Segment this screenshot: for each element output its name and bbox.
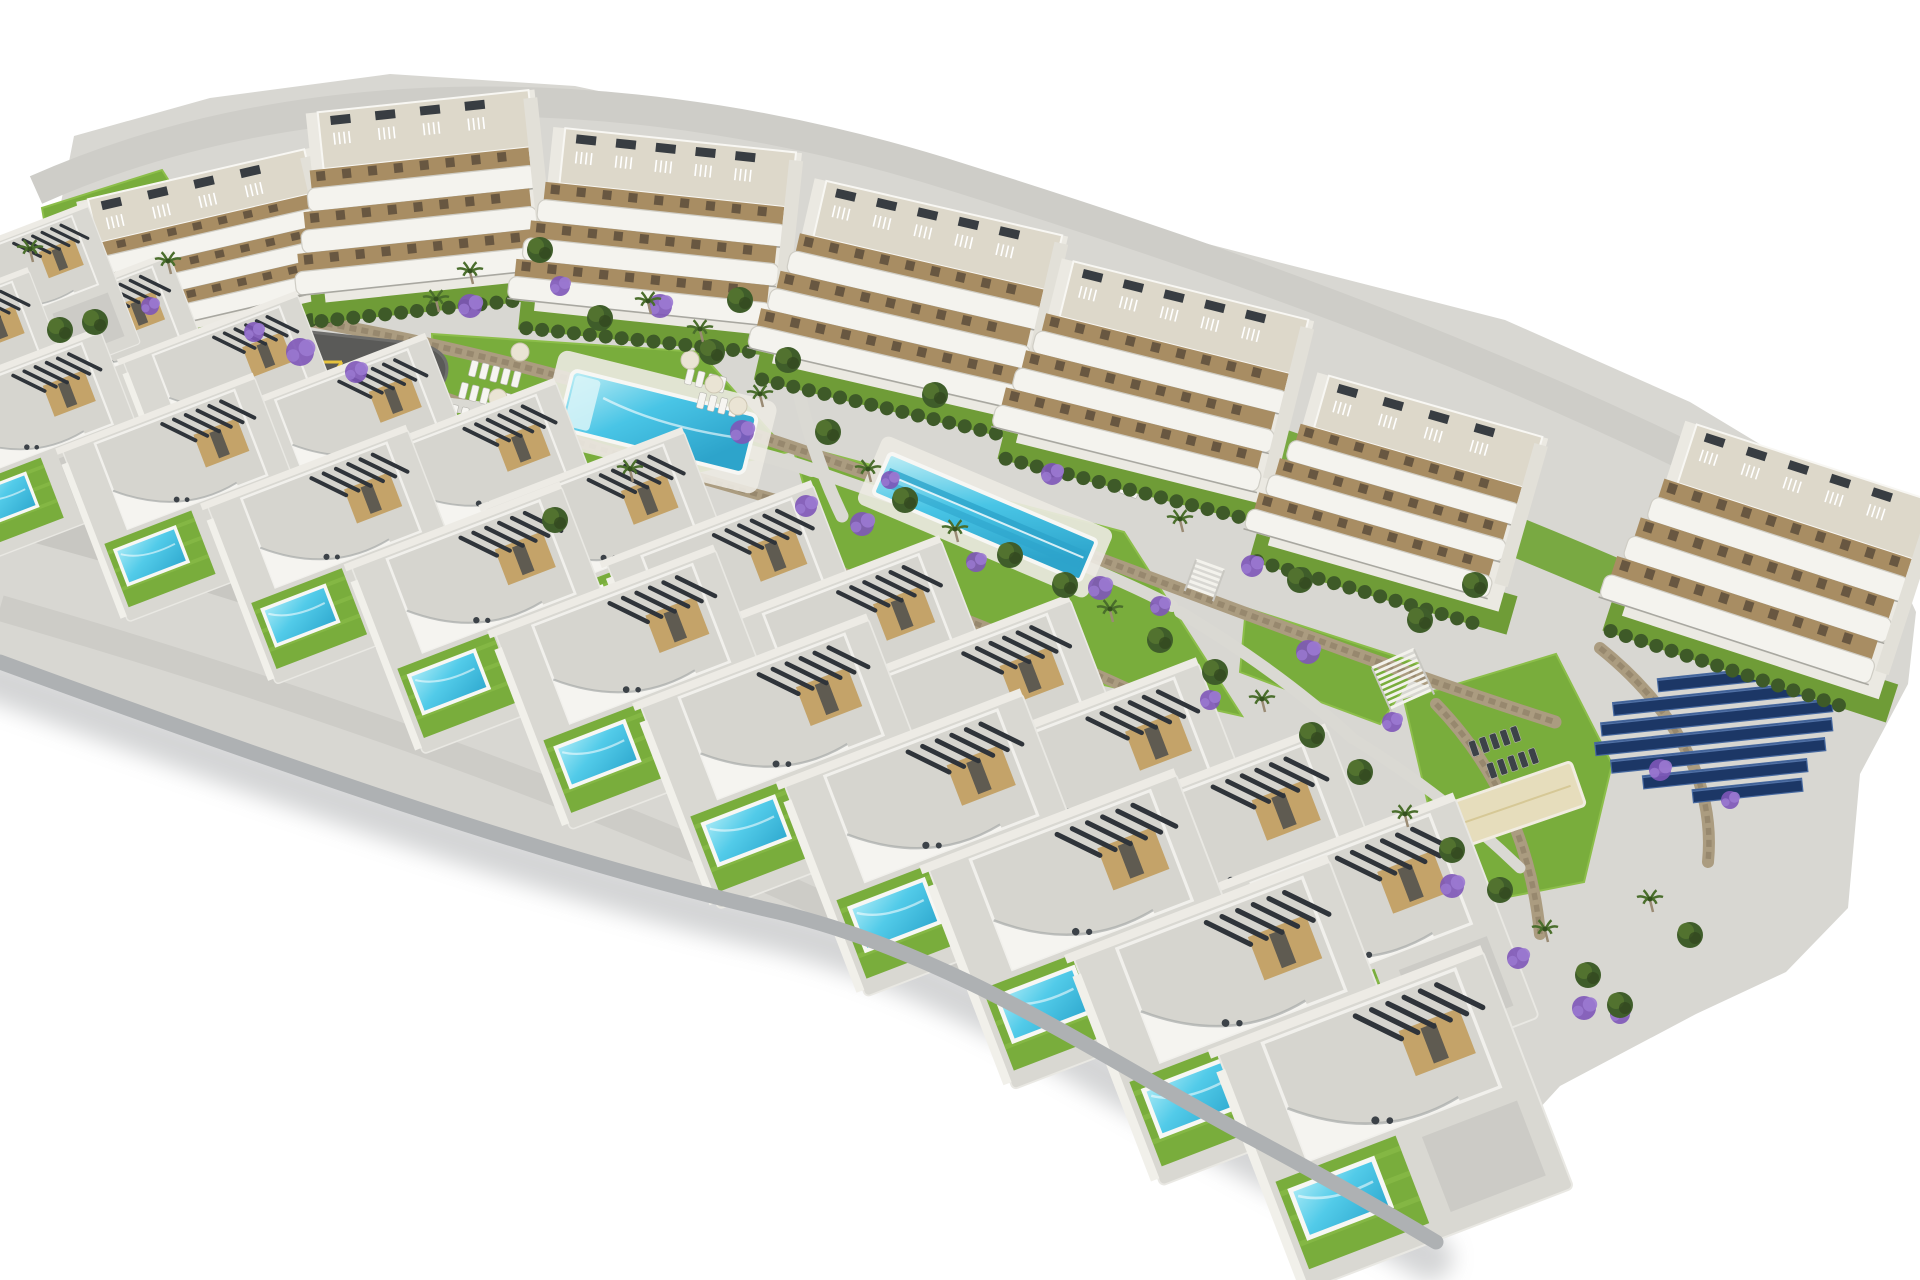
tree bbox=[1439, 837, 1465, 863]
tree bbox=[1287, 567, 1313, 593]
parasol bbox=[729, 397, 747, 415]
tree bbox=[815, 419, 841, 445]
tree bbox=[892, 487, 918, 513]
tree bbox=[542, 507, 568, 533]
tree bbox=[527, 237, 553, 263]
parasol bbox=[705, 375, 723, 393]
tree bbox=[1407, 607, 1433, 633]
screenshot-canvas bbox=[0, 0, 1920, 1280]
tree bbox=[1487, 877, 1513, 903]
tree bbox=[587, 305, 613, 331]
tree bbox=[1462, 572, 1488, 598]
tree bbox=[82, 309, 108, 335]
tree bbox=[1147, 627, 1173, 653]
tree bbox=[1052, 572, 1078, 598]
tree bbox=[1677, 922, 1703, 948]
tree bbox=[1202, 659, 1228, 685]
tree bbox=[727, 287, 753, 313]
tree bbox=[1347, 759, 1373, 785]
site-plan-render bbox=[0, 0, 1920, 1280]
tree bbox=[775, 347, 801, 373]
tree bbox=[699, 339, 725, 365]
parasol bbox=[511, 343, 529, 361]
tree bbox=[1299, 722, 1325, 748]
parasol bbox=[681, 351, 699, 369]
tree bbox=[997, 542, 1023, 568]
tree bbox=[1575, 962, 1601, 988]
tree bbox=[47, 317, 73, 343]
tree bbox=[1607, 992, 1633, 1018]
tree bbox=[922, 382, 948, 408]
